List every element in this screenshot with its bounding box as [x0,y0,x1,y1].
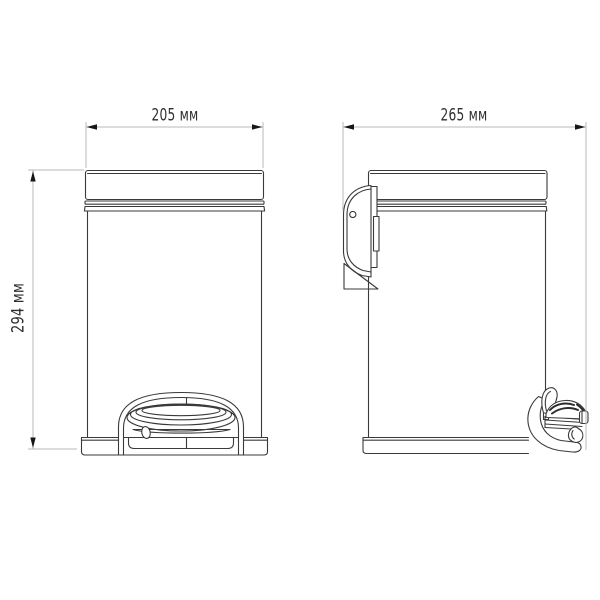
arrowhead [30,438,35,449]
pedal-tip-cap [580,411,589,424]
side-lid [369,171,548,212]
dimension-height: 294 мм [9,170,85,449]
hinge-pivot-pin [350,211,356,217]
pedal-hook [568,427,582,442]
arrowhead [575,124,586,129]
pedal-bin-drawing: 205 мм 265 мм 294 мм [0,0,600,600]
side-hinge-assembly [344,186,380,290]
arrowhead [252,124,263,129]
hinge-tab [374,217,380,252]
depth-label: 265 мм [441,106,488,125]
dimension-front-width: 205 мм [86,106,263,169]
hinge-cover [344,186,372,278]
front-lid-grooves [84,201,264,211]
side-base [363,438,529,454]
technical-drawing-canvas: 205 мм 265 мм 294 мм [0,0,600,600]
arrowhead [30,171,35,182]
front-view [82,171,268,456]
side-view [344,171,589,454]
side-body [369,211,546,438]
height-label: 294 мм [9,283,28,333]
arrowhead [87,124,98,129]
side-pedal-mechanism [528,388,588,452]
front-width-label: 205 мм [152,106,199,125]
arrowhead [344,124,355,129]
front-lid [86,171,264,200]
